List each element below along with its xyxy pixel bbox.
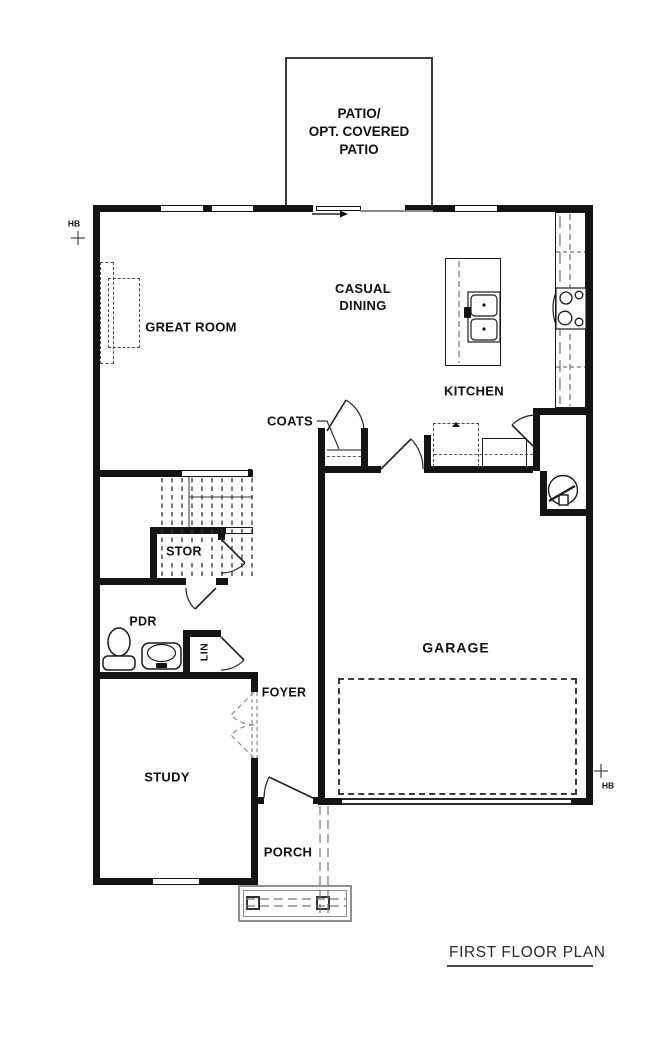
kitchen-counter [555, 212, 586, 408]
wall-segment [93, 470, 183, 477]
wall-segment [586, 205, 593, 805]
hose-bib-marker-left [71, 231, 85, 245]
hose-bib-marker-right [594, 764, 608, 778]
wall-segment [318, 466, 381, 473]
stair-tread-strip [225, 527, 253, 534]
window [454, 205, 498, 212]
wall-segment [93, 578, 186, 585]
wall-segment [93, 205, 100, 885]
wall-segment [497, 205, 593, 212]
wall-segment [540, 509, 586, 516]
door-swing-garage-entry [381, 439, 423, 469]
hose-bib-label-right: HB [602, 778, 614, 795]
kitchen-island [445, 258, 501, 366]
coats-rod-dashed-line [327, 456, 361, 457]
patio-outline: PATIO/ OPT. COVERED PATIO [285, 57, 433, 205]
wall-segment [318, 428, 325, 805]
wall-segment [424, 466, 533, 473]
mudroom-cabinet [482, 438, 527, 467]
coats-shelf-line [327, 449, 361, 451]
wall-segment [93, 672, 258, 679]
room-label-kitchen: KITCHEN [444, 383, 504, 400]
wall-segment [318, 798, 342, 805]
door-swing-stor [221, 539, 245, 573]
stair-nosing-tick [248, 469, 252, 477]
garage-door-line [342, 803, 571, 805]
room-label-lin: LIN [197, 643, 214, 661]
wall-segment [253, 205, 313, 212]
window [152, 878, 200, 885]
room-label-patio: PATIO/ OPT. COVERED PATIO [309, 105, 410, 159]
wall-segment [150, 527, 225, 534]
door-swing-lin [221, 637, 244, 670]
wall-segment [199, 878, 258, 885]
counter-depth-dashed-line [434, 454, 533, 455]
window [211, 205, 254, 212]
slider-direction-arrow-icon [312, 211, 348, 218]
door-swing-front-entry [264, 777, 313, 798]
water-heater-icon [549, 476, 578, 506]
wall-segment [533, 408, 540, 471]
room-label-casual-dining: CASUAL DINING [335, 280, 391, 314]
wall-segment [218, 527, 225, 540]
pedestal-sink-icon [142, 643, 181, 669]
wall-segment [150, 527, 157, 585]
porch-column [246, 896, 260, 910]
stair-landing-strip [181, 470, 253, 477]
door-swing-pdr [186, 588, 216, 609]
wall-segment [93, 205, 162, 212]
porch-column [316, 896, 330, 910]
room-label-foyer: FOYER [262, 685, 307, 702]
garage-door-line [342, 798, 571, 800]
refrigerator-dashed-outline [433, 423, 479, 467]
toilet-icon [103, 628, 135, 670]
room-label-stor: STOR [164, 544, 204, 561]
optional-fireplace-inner-dashed-outline [108, 278, 140, 348]
hose-bib-label-left: HB [68, 216, 80, 233]
wall-segment [251, 758, 258, 885]
stair-rail [189, 477, 253, 527]
drawing-title: FIRST FLOOR PLAN [449, 944, 606, 962]
sliding-door-panel [316, 206, 361, 211]
room-label-porch: PORCH [264, 844, 312, 861]
room-label-garage: GARAGE [422, 640, 489, 657]
wall-segment [540, 471, 547, 513]
wall-segment [216, 578, 228, 585]
room-label-coats: COATS [267, 413, 313, 430]
wall-segment [183, 630, 190, 672]
french-doors-study-dashed [231, 692, 257, 758]
door-swing-coats [327, 400, 364, 431]
room-label-pdr: PDR [129, 614, 156, 631]
wall-segment [251, 797, 264, 804]
wall-segment [251, 672, 258, 692]
room-label-great-room: GREAT ROOM [145, 319, 237, 336]
floor-plan-canvas: PATIO/ OPT. COVERED PATIO [0, 0, 656, 1040]
wall-segment [571, 798, 593, 805]
garage-door-dashed-outline [338, 678, 577, 795]
wall-segment [93, 878, 153, 885]
wall-segment [361, 428, 368, 473]
drawing-title-underline [447, 965, 593, 967]
sliding-door-fixed-panel-line [360, 210, 433, 212]
room-label-study: STUDY [144, 769, 190, 786]
wall-segment [424, 435, 431, 466]
window [160, 205, 204, 212]
wall-segment [533, 408, 593, 415]
